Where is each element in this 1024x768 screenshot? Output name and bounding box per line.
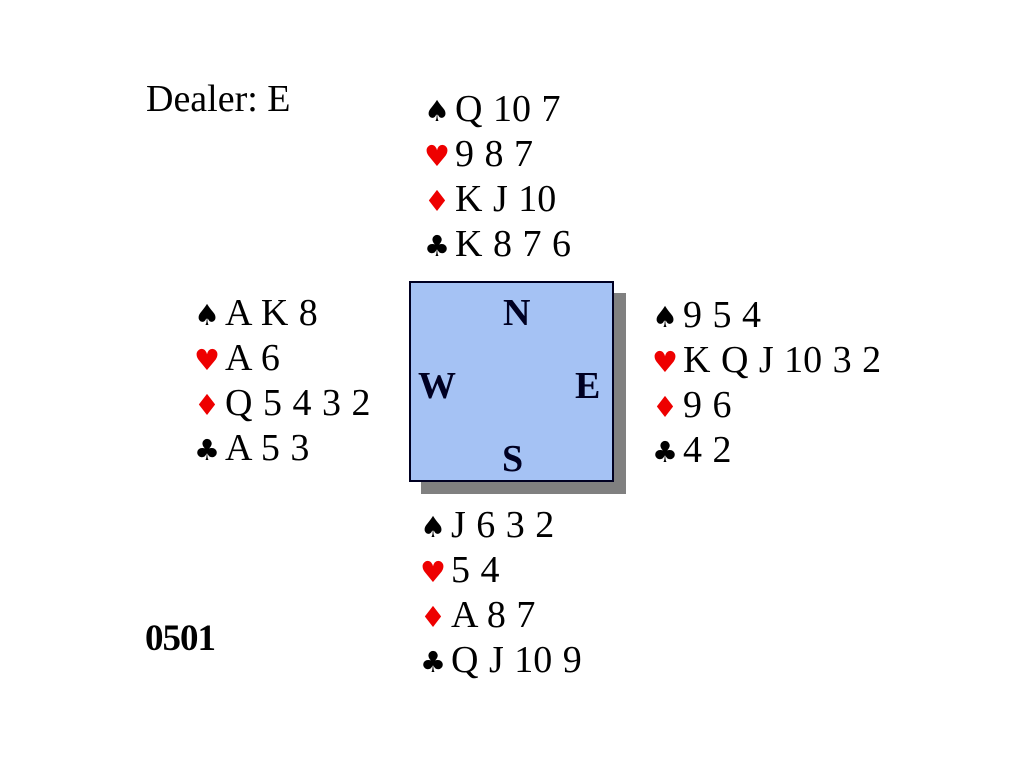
east-clubs-cards: 4 2 xyxy=(683,429,732,471)
compass-south-label: S xyxy=(502,440,523,478)
compass-west-label: W xyxy=(418,367,456,405)
north-diamonds-cards: K J 10 xyxy=(455,178,556,220)
west-hearts-cards: A 6 xyxy=(225,337,280,379)
east-spades-row: ♠9 5 4 xyxy=(652,294,881,339)
club-icon: ♣ xyxy=(424,225,455,268)
south-hearts-row: ♥5 4 xyxy=(420,549,582,594)
dealer-label: Dealer: E xyxy=(146,78,291,121)
east-spades-cards: 9 5 4 xyxy=(683,294,761,336)
west-spades-cards: A K 8 xyxy=(225,292,318,334)
north-hearts-cards: 9 8 7 xyxy=(455,133,533,175)
north-spades-row: ♠Q 10 7 xyxy=(424,88,571,133)
compass-north-label: N xyxy=(503,294,530,332)
heart-icon: ♥ xyxy=(420,551,451,594)
diamond-icon: ♦ xyxy=(652,386,683,429)
west-diamonds-row: ♦Q 5 4 3 2 xyxy=(194,382,370,427)
north-clubs-cards: K 8 7 6 xyxy=(455,223,571,265)
club-icon: ♣ xyxy=(194,429,225,472)
south-diamonds-row: ♦A 8 7 xyxy=(420,594,582,639)
board-number: 0501 xyxy=(145,617,215,660)
west-hearts-row: ♥A 6 xyxy=(194,337,370,382)
south-diamonds-cards: A 8 7 xyxy=(451,594,535,636)
south-clubs-cards: Q J 10 9 xyxy=(451,639,582,681)
club-icon: ♣ xyxy=(420,641,451,684)
heart-icon: ♥ xyxy=(424,135,455,178)
south-spades-cards: J 6 3 2 xyxy=(451,504,554,546)
south-hand: ♠J 6 3 2 ♥5 4 ♦A 8 7 ♣Q J 10 9 xyxy=(420,504,582,684)
diamond-icon: ♦ xyxy=(424,180,455,223)
north-spades-cards: Q 10 7 xyxy=(455,88,560,130)
compass-box: N W E S xyxy=(409,281,614,482)
south-hearts-cards: 5 4 xyxy=(451,549,500,591)
west-hand: ♠A K 8 ♥A 6 ♦Q 5 4 3 2 ♣A 5 3 xyxy=(194,292,370,472)
spade-icon: ♠ xyxy=(194,294,225,337)
compass-east-label: E xyxy=(575,367,600,405)
heart-icon: ♥ xyxy=(194,339,225,382)
heart-icon: ♥ xyxy=(652,341,683,384)
east-clubs-row: ♣4 2 xyxy=(652,429,881,474)
west-diamonds-cards: Q 5 4 3 2 xyxy=(225,382,370,424)
south-clubs-row: ♣Q J 10 9 xyxy=(420,639,582,684)
south-spades-row: ♠J 6 3 2 xyxy=(420,504,582,549)
west-clubs-row: ♣A 5 3 xyxy=(194,427,370,472)
club-icon: ♣ xyxy=(652,431,683,474)
east-diamonds-row: ♦9 6 xyxy=(652,384,881,429)
east-hearts-row: ♥K Q J 10 3 2 xyxy=(652,339,881,384)
north-hand: ♠Q 10 7 ♥9 8 7 ♦K J 10 ♣K 8 7 6 xyxy=(424,88,571,268)
north-clubs-row: ♣K 8 7 6 xyxy=(424,223,571,268)
spade-icon: ♠ xyxy=(424,90,455,133)
west-spades-row: ♠A K 8 xyxy=(194,292,370,337)
spade-icon: ♠ xyxy=(652,296,683,339)
spade-icon: ♠ xyxy=(420,506,451,549)
east-diamonds-cards: 9 6 xyxy=(683,384,732,426)
diamond-icon: ♦ xyxy=(194,384,225,427)
east-hand: ♠9 5 4 ♥K Q J 10 3 2 ♦9 6 ♣4 2 xyxy=(652,294,881,474)
north-diamonds-row: ♦K J 10 xyxy=(424,178,571,223)
north-hearts-row: ♥9 8 7 xyxy=(424,133,571,178)
west-clubs-cards: A 5 3 xyxy=(225,427,309,469)
diamond-icon: ♦ xyxy=(420,596,451,639)
east-hearts-cards: K Q J 10 3 2 xyxy=(683,339,881,381)
